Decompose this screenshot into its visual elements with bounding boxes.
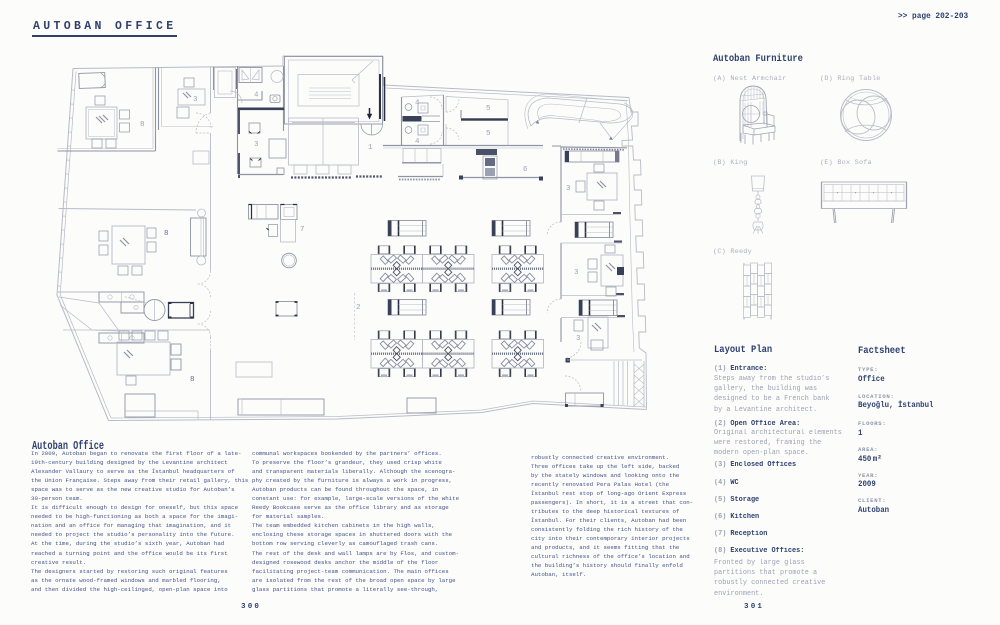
svg-text:4: 4: [415, 100, 420, 108]
svg-text:3: 3: [574, 269, 579, 277]
svg-text:8: 8: [164, 230, 169, 238]
svg-text:3: 3: [193, 96, 198, 104]
svg-text:5: 5: [486, 130, 491, 138]
svg-text:1: 1: [368, 144, 373, 152]
svg-text:4: 4: [254, 92, 259, 100]
svg-text:3: 3: [566, 185, 571, 193]
svg-text:5: 5: [486, 105, 491, 113]
svg-text:4: 4: [415, 138, 420, 146]
svg-text:8: 8: [140, 121, 145, 129]
svg-text:2: 2: [356, 304, 361, 312]
svg-text:8: 8: [190, 376, 195, 384]
svg-text:7: 7: [300, 226, 305, 234]
svg-text:3: 3: [576, 335, 581, 343]
svg-text:3: 3: [254, 141, 259, 149]
svg-text:6: 6: [523, 166, 528, 174]
